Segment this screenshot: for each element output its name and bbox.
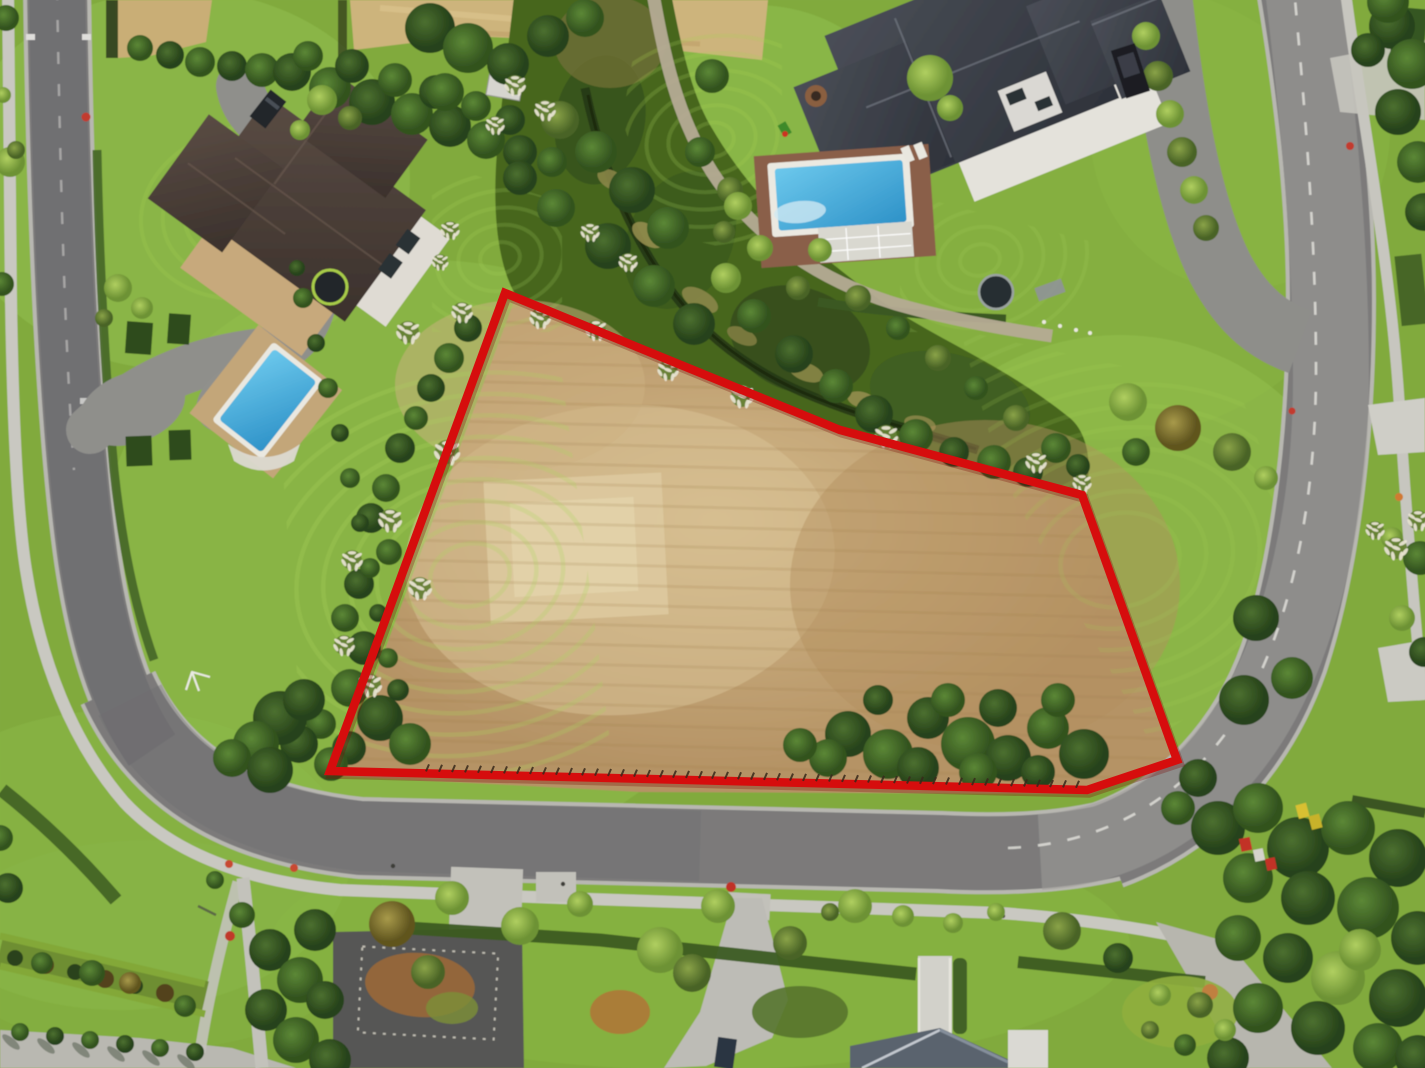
tree [1369, 829, 1425, 887]
tree [95, 309, 113, 327]
tree [335, 49, 369, 83]
tree [1149, 984, 1171, 1006]
tree [1161, 791, 1195, 825]
tree [372, 474, 400, 502]
tree [979, 689, 1017, 727]
pampas-plume [1078, 475, 1085, 478]
tree [1351, 33, 1385, 67]
tree [1066, 454, 1090, 478]
tree [783, 728, 817, 762]
tree [501, 907, 539, 945]
tree [886, 316, 910, 340]
garden-bed [426, 992, 478, 1024]
tree [127, 35, 153, 61]
tree [1271, 657, 1313, 699]
tree [1041, 683, 1075, 717]
tree [527, 15, 569, 57]
tree [426, 73, 464, 111]
mailbox-red [1289, 408, 1296, 415]
tree [387, 679, 409, 701]
tree [1369, 969, 1425, 1027]
pampas-plume [385, 510, 394, 514]
hedge-square [168, 430, 191, 461]
hedge-square [167, 313, 191, 344]
tree [104, 274, 132, 302]
tree [863, 685, 893, 715]
paddock-fence [338, 0, 347, 58]
lawnmower-operator [782, 131, 788, 137]
tree [1174, 1034, 1196, 1056]
tree [1254, 466, 1278, 490]
tree [1167, 137, 1197, 167]
tree [340, 468, 360, 488]
tree [293, 288, 313, 308]
tree [537, 189, 575, 227]
pampas-plume [1414, 511, 1422, 514]
tree [695, 59, 729, 93]
tree [331, 424, 349, 442]
tree [673, 303, 715, 345]
tree [566, 0, 604, 37]
tree [1109, 383, 1147, 421]
tree [461, 91, 491, 121]
tree [931, 683, 965, 717]
pampas-plume [437, 255, 443, 258]
tree [711, 263, 741, 293]
hedge-shrub [156, 984, 174, 1002]
tree [1233, 983, 1283, 1033]
tree [537, 147, 567, 177]
tree [46, 1027, 64, 1045]
tree [808, 238, 832, 262]
tree [283, 679, 325, 721]
tree [293, 41, 323, 71]
paddock-fence [106, 0, 118, 58]
pampas-plume [415, 578, 424, 582]
hedge [953, 958, 967, 1034]
tree [633, 265, 675, 307]
tree [1141, 1021, 1159, 1039]
tree [1122, 438, 1150, 466]
tree [119, 972, 141, 994]
tree [1155, 405, 1201, 451]
tree [360, 558, 380, 578]
tree [443, 23, 493, 73]
tree [318, 378, 338, 398]
tree [647, 207, 689, 249]
tree [907, 55, 953, 101]
driveway-apron [1368, 398, 1425, 455]
tree [338, 106, 362, 130]
tree [7, 141, 25, 159]
tree [987, 903, 1005, 921]
hedge-square [125, 436, 152, 467]
tree [1179, 759, 1217, 797]
tree [206, 871, 224, 889]
tree [713, 221, 735, 243]
tree [1233, 595, 1279, 641]
patio-white [1008, 1030, 1048, 1068]
tree [845, 285, 871, 311]
mailbox-red [225, 931, 235, 941]
tree [294, 909, 336, 951]
tree [11, 1023, 29, 1041]
garden-bed [752, 986, 848, 1038]
tree [331, 604, 359, 632]
tree [174, 995, 196, 1017]
tree [378, 63, 412, 97]
tree [290, 120, 310, 140]
aerial-photo-canvas [0, 0, 1425, 1068]
wheelie-bin-red [726, 882, 736, 892]
tree [385, 433, 415, 463]
tree [434, 343, 464, 373]
tree [1215, 915, 1261, 961]
tree [156, 41, 184, 69]
garden-bed [590, 990, 650, 1034]
pampas-plume [458, 303, 466, 306]
tree [701, 889, 735, 923]
tree [376, 539, 402, 565]
tree [1132, 22, 1160, 50]
tree [786, 276, 810, 300]
tree [964, 376, 988, 400]
pampas-plume [491, 117, 498, 120]
tree [1043, 912, 1081, 950]
tree [306, 981, 344, 1019]
tree [685, 137, 715, 167]
mailbox-red [1346, 142, 1354, 150]
tree [116, 1035, 134, 1053]
tree [1321, 801, 1375, 855]
tree [417, 374, 445, 402]
hedge-square [125, 321, 153, 355]
tree [1041, 433, 1071, 463]
fire-pit [811, 91, 821, 101]
marker-post [290, 864, 298, 872]
bollard [561, 882, 565, 886]
tree [289, 260, 305, 276]
tree [1233, 783, 1283, 833]
tree [307, 85, 337, 115]
white-flower [1042, 320, 1046, 324]
pampas-plume [348, 551, 356, 554]
tree [1339, 929, 1381, 971]
tree [609, 167, 655, 213]
hedge-shrub [7, 950, 23, 966]
tree [1281, 871, 1335, 925]
pampas-plume [541, 101, 549, 104]
tree [1219, 675, 1269, 725]
pampas-plume [403, 322, 412, 326]
white-flower [1058, 324, 1062, 328]
pampas-plume [1032, 453, 1040, 456]
tree [724, 192, 752, 220]
bollard [391, 864, 395, 868]
tree [307, 334, 325, 352]
tree [925, 345, 951, 371]
tree [404, 406, 428, 430]
road-marking [82, 34, 91, 40]
white-flower [1074, 328, 1078, 332]
tree [892, 905, 914, 927]
tree [821, 903, 839, 921]
aerial-photo [0, 0, 1425, 1068]
tree [1213, 433, 1251, 471]
mailbox-red [82, 113, 91, 122]
tree [186, 1043, 204, 1061]
pampas-plume [592, 321, 600, 324]
tree [435, 881, 469, 915]
tree [1180, 176, 1208, 204]
tree [151, 1039, 169, 1057]
marker-post [225, 860, 233, 868]
tree [213, 739, 251, 777]
pampas-plume [624, 254, 631, 257]
pampas-plume [511, 76, 519, 79]
tree [773, 926, 807, 960]
tree [1263, 933, 1313, 983]
tree [411, 955, 445, 989]
pampas-plume [340, 636, 348, 639]
tree [1214, 1019, 1236, 1041]
tree [369, 901, 415, 947]
tree [937, 95, 963, 121]
tree [1389, 605, 1415, 631]
tree [575, 131, 617, 173]
tree [1156, 100, 1184, 128]
tree [185, 47, 215, 77]
tree [247, 747, 293, 793]
traffic-cone [1395, 493, 1403, 501]
tree [79, 960, 105, 986]
white-flower [1088, 331, 1092, 335]
tree [747, 235, 773, 261]
tree [31, 952, 53, 974]
pampas-plume [586, 224, 593, 227]
tree [1103, 943, 1133, 973]
tree [819, 369, 853, 403]
pampas-plume [1371, 522, 1378, 525]
pampas-plume [1391, 538, 1400, 542]
road-marking [26, 34, 35, 40]
pool-lattice-deck [818, 221, 914, 262]
tree [1337, 877, 1399, 939]
tree [567, 891, 593, 917]
tree [503, 161, 537, 195]
tree [229, 902, 255, 928]
photo-layer [0, 0, 1425, 1068]
tree [1375, 89, 1421, 135]
tree [673, 954, 711, 992]
tree [1059, 729, 1109, 779]
tree [1291, 1001, 1345, 1055]
tree [737, 299, 771, 333]
tree [838, 889, 872, 923]
tree [131, 297, 153, 319]
tree [943, 913, 963, 933]
tree [1193, 215, 1219, 241]
tree [775, 335, 813, 373]
tree [81, 1031, 99, 1049]
tree [1003, 405, 1029, 431]
tree [1187, 992, 1213, 1018]
pampas-plume [446, 222, 453, 225]
tree [217, 51, 247, 81]
tree [351, 514, 369, 532]
pampas-plume [881, 426, 890, 430]
tree [389, 723, 431, 765]
